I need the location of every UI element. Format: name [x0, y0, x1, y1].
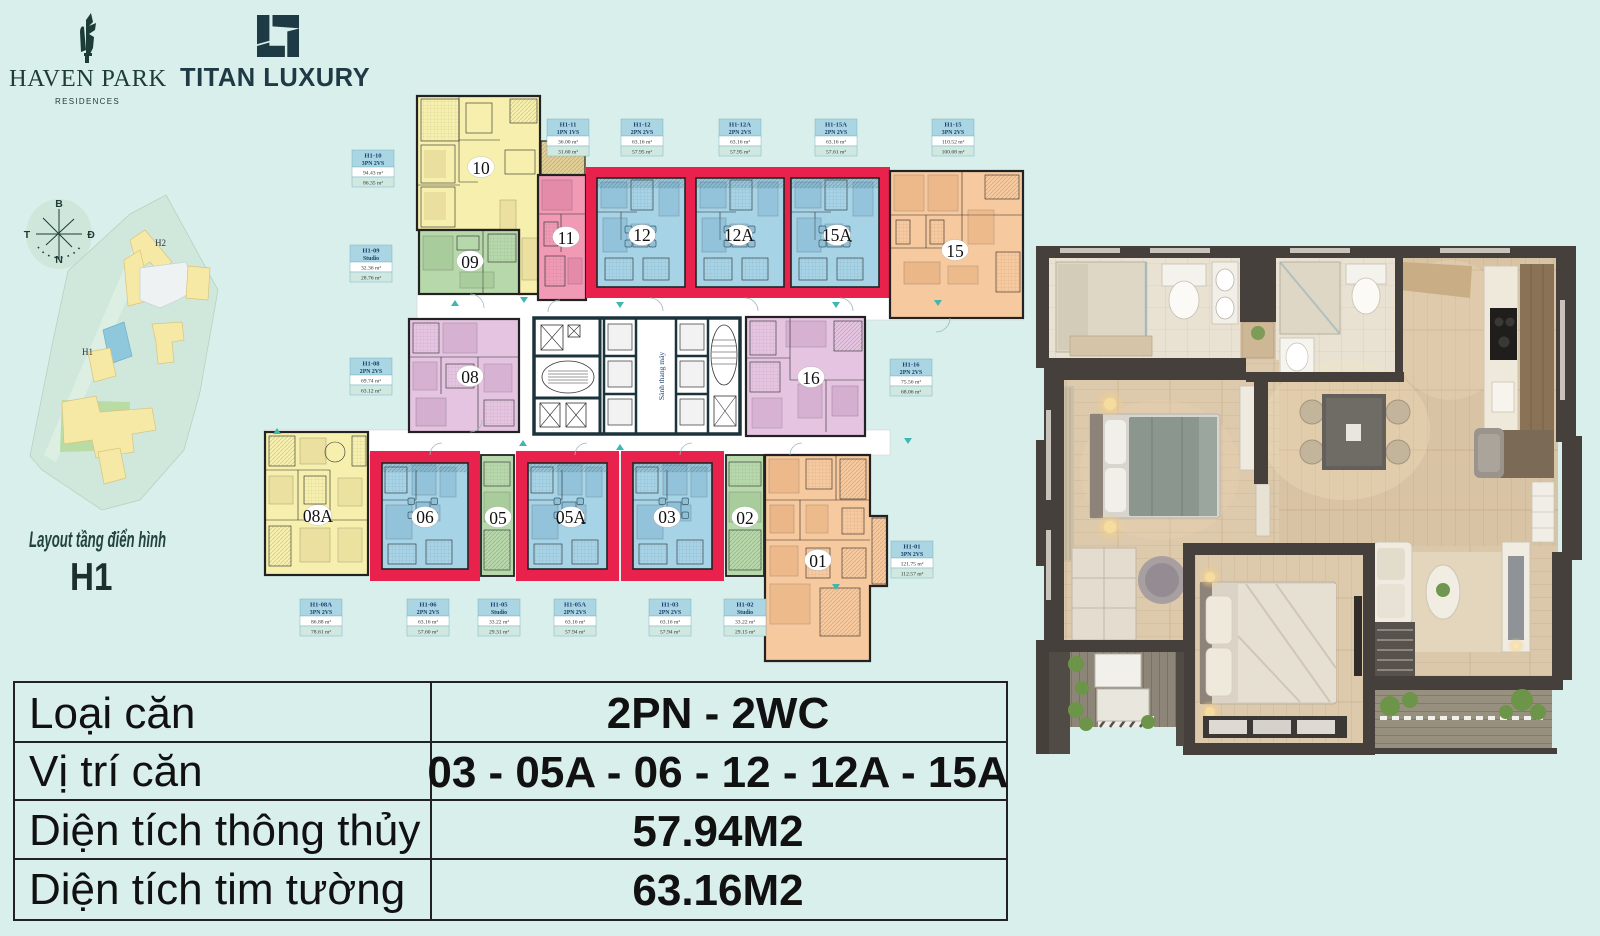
svg-text:3PN 2VS: 3PN 2VS [942, 130, 964, 136]
svg-text:H1-15A: H1-15A [825, 122, 847, 129]
svg-text:33.22 m²: 33.22 m² [735, 619, 755, 625]
svg-text:69.74 m²: 69.74 m² [361, 378, 381, 384]
svg-text:121.75 m²: 121.75 m² [901, 561, 924, 567]
svg-text:63.16 m²: 63.16 m² [660, 619, 680, 625]
svg-text:3PN 2VS: 3PN 2VS [362, 161, 384, 167]
svg-text:110.52 m²: 110.52 m² [942, 139, 965, 145]
svg-text:2PN 2VS: 2PN 2VS [825, 130, 847, 136]
svg-text:H2: H2 [155, 238, 166, 248]
svg-text:63.16 m²: 63.16 m² [565, 619, 585, 625]
svg-text:H1-16: H1-16 [902, 362, 920, 369]
svg-text:57.60 m²: 57.60 m² [418, 629, 438, 635]
svg-text:05: 05 [489, 508, 507, 528]
svg-text:2PN 2VS: 2PN 2VS [631, 130, 653, 136]
svg-text:68.06 m²: 68.06 m² [901, 389, 921, 395]
svg-text:57.61 m²: 57.61 m² [826, 149, 846, 155]
svg-text:H1-05: H1-05 [490, 602, 508, 609]
svg-text:16: 16 [802, 368, 820, 388]
svg-text:09: 09 [461, 252, 479, 272]
svg-text:29.15 m²: 29.15 m² [735, 629, 755, 635]
svg-text:2PN 2VS: 2PN 2VS [659, 610, 681, 616]
svg-text:57.94 m²: 57.94 m² [660, 629, 680, 635]
svg-text:RESIDENCES: RESIDENCES [55, 97, 120, 106]
svg-text:H1-01: H1-01 [903, 544, 920, 551]
svg-text:78.61 m²: 78.61 m² [311, 629, 331, 635]
svg-text:H1-08A: H1-08A [310, 602, 332, 609]
svg-text:H1-06: H1-06 [419, 602, 437, 609]
svg-text:Studio: Studio [737, 610, 753, 616]
svg-text:H1-09: H1-09 [362, 248, 380, 255]
svg-text:12A: 12A [724, 225, 755, 245]
svg-text:1PN 1VS: 1PN 1VS [557, 130, 579, 136]
svg-text:32.36 m²: 32.36 m² [361, 265, 381, 271]
svg-text:01: 01 [809, 551, 827, 571]
svg-text:2PN 2VS: 2PN 2VS [564, 610, 586, 616]
svg-text:63.12 m²: 63.12 m² [361, 388, 381, 394]
svg-text:33.22 m²: 33.22 m² [489, 619, 509, 625]
svg-text:03 - 05A - 06 - 12 - 12A - 15A: 03 - 05A - 06 - 12 - 12A - 15A [427, 748, 1008, 797]
svg-text:H1-05A: H1-05A [564, 602, 586, 609]
svg-text:86.35 m²: 86.35 m² [363, 180, 383, 186]
svg-text:15A: 15A [822, 225, 853, 245]
svg-text:H1-12A: H1-12A [729, 122, 751, 129]
svg-text:Sảnh thang máy: Sảnh thang máy [657, 352, 666, 401]
svg-text:57.94 m²: 57.94 m² [565, 629, 585, 635]
svg-text:63.16M2: 63.16M2 [632, 866, 803, 915]
svg-text:02: 02 [736, 508, 754, 528]
svg-text:112.57 m²: 112.57 m² [901, 571, 924, 577]
svg-text:H1-02: H1-02 [736, 602, 754, 609]
svg-text:2PN - 2WC: 2PN - 2WC [607, 689, 829, 738]
svg-text:Diện tích thông thủy: Diện tích thông thủy [29, 806, 420, 855]
svg-text:12: 12 [633, 225, 651, 245]
svg-text:2PN 2VS: 2PN 2VS [360, 369, 382, 375]
svg-text:100.68 m²: 100.68 m² [942, 149, 965, 155]
svg-text:63.16 m²: 63.16 m² [418, 619, 438, 625]
svg-text:TITAN LUXURY: TITAN LUXURY [180, 64, 370, 92]
svg-text:36.00 m²: 36.00 m² [558, 139, 578, 145]
svg-text:2PN 2VS: 2PN 2VS [417, 610, 439, 616]
svg-text:H1-03: H1-03 [661, 602, 679, 609]
svg-text:03: 03 [658, 507, 676, 527]
svg-text:29.31 m²: 29.31 m² [489, 629, 509, 635]
svg-text:57.94M2: 57.94M2 [632, 807, 803, 856]
svg-text:15: 15 [946, 241, 964, 261]
svg-text:11: 11 [558, 228, 575, 248]
svg-text:2PN 2VS: 2PN 2VS [900, 370, 922, 376]
svg-text:Studio: Studio [363, 256, 379, 262]
svg-text:63.16 m²: 63.16 m² [730, 139, 750, 145]
svg-text:31.60 m²: 31.60 m² [558, 149, 578, 155]
svg-text:H1-11: H1-11 [560, 122, 577, 129]
svg-text:94.43 m²: 94.43 m² [363, 170, 383, 176]
svg-text:H1-15: H1-15 [944, 122, 962, 129]
svg-text:Studio: Studio [491, 610, 507, 616]
svg-text:28.76 m²: 28.76 m² [361, 275, 381, 281]
svg-text:08: 08 [461, 367, 479, 387]
svg-text:63.16 m²: 63.16 m² [826, 139, 846, 145]
svg-text:H1-12: H1-12 [633, 122, 651, 129]
svg-text:75.56 m²: 75.56 m² [901, 379, 921, 385]
svg-text:06: 06 [416, 507, 434, 527]
svg-text:HAVEN PARK: HAVEN PARK [9, 65, 167, 92]
svg-text:H1-08: H1-08 [362, 361, 380, 368]
svg-text:3PN 2VS: 3PN 2VS [310, 610, 332, 616]
svg-text:08A: 08A [303, 506, 334, 526]
svg-text:Vị trí căn: Vị trí căn [29, 747, 203, 796]
svg-text:3PN 2VS: 3PN 2VS [901, 552, 923, 558]
svg-text:2PN 2VS: 2PN 2VS [729, 130, 751, 136]
svg-text:57.95 m²: 57.95 m² [730, 149, 750, 155]
svg-text:10: 10 [472, 158, 490, 178]
svg-text:H1: H1 [82, 347, 93, 357]
svg-text:57.95 m²: 57.95 m² [632, 149, 652, 155]
svg-text:H1-10: H1-10 [364, 153, 382, 160]
svg-text:Loại căn: Loại căn [29, 689, 195, 738]
svg-text:05A: 05A [556, 507, 587, 527]
svg-text:63.16 m²: 63.16 m² [632, 139, 652, 145]
svg-text:86.88 m²: 86.88 m² [311, 619, 331, 625]
svg-text:Diện tích tim tường: Diện tích tim tường [29, 865, 405, 914]
